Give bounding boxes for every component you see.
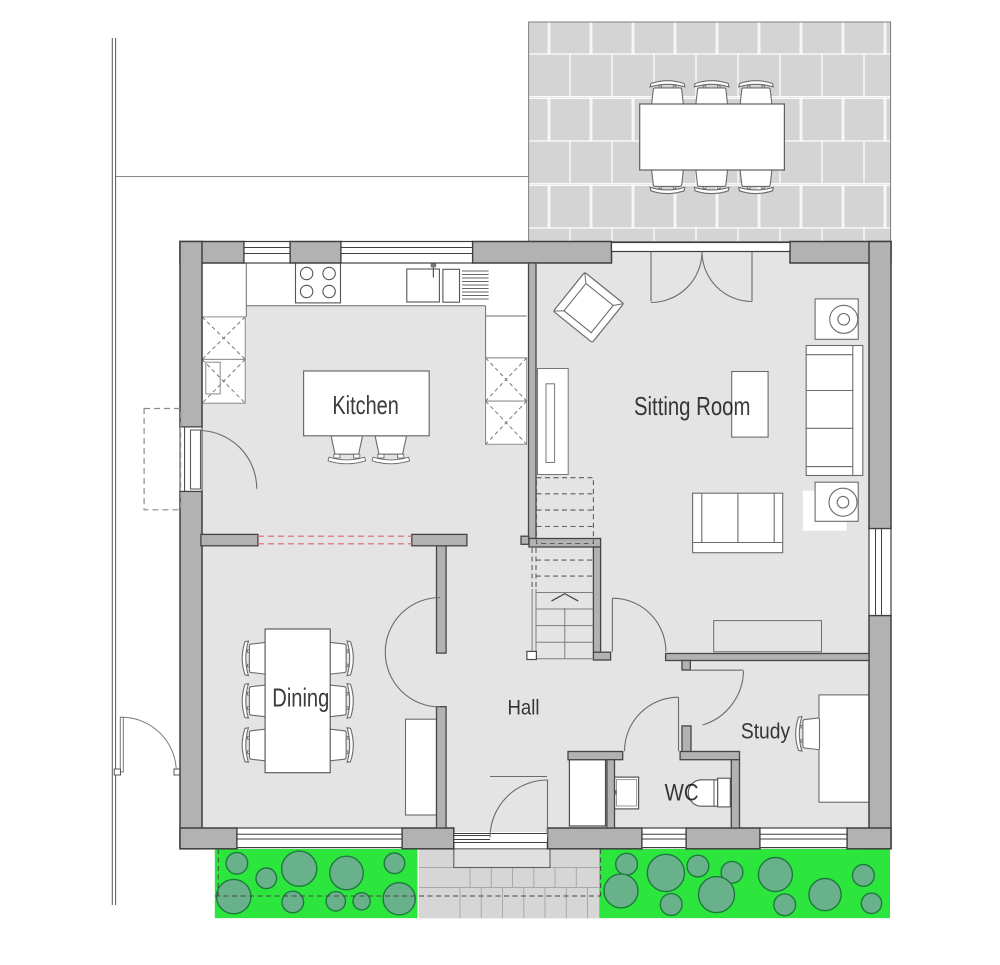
svg-text:Hall: Hall xyxy=(508,697,540,720)
svg-text:Sitting Room: Sitting Room xyxy=(634,391,751,421)
svg-text:Dining: Dining xyxy=(272,683,329,713)
svg-text:WC: WC xyxy=(665,780,699,807)
svg-text:Kitchen: Kitchen xyxy=(332,390,399,420)
svg-text:Study: Study xyxy=(741,719,790,744)
